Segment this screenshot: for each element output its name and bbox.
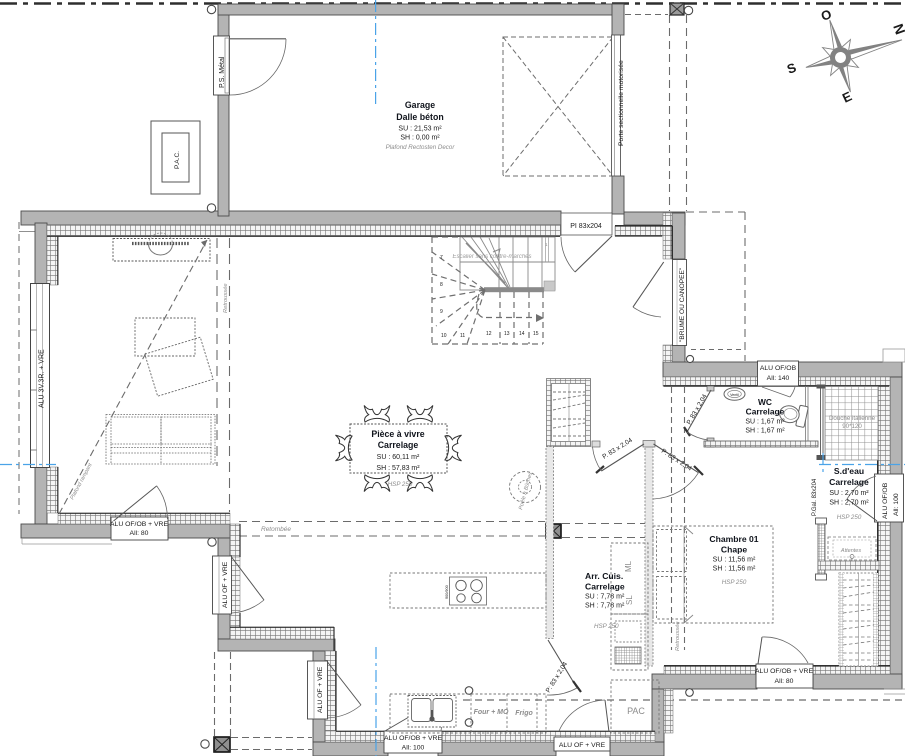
svg-text:SL: SL [625, 595, 634, 605]
svg-text:SU : 2,70 m²: SU : 2,70 m² [829, 490, 869, 497]
svg-text:ALU OF/OB: ALU OF/OB [882, 482, 889, 519]
svg-text:SU : 11,56 m²: SU : 11,56 m² [713, 557, 756, 564]
svg-text:7: 7 [440, 255, 443, 261]
svg-text:ALU OF + VRE: ALU OF + VRE [317, 666, 324, 713]
svg-text:Ventil: Ventil [730, 393, 739, 397]
svg-text:12: 12 [486, 331, 492, 337]
svg-text:HSP 250: HSP 250 [722, 579, 747, 586]
svg-text:Carrelage: Carrelage [378, 440, 419, 450]
svg-text:Porte sectionnelle motorisée: Porte sectionnelle motorisée [618, 60, 625, 146]
svg-text:Attentes: Attentes [840, 548, 861, 554]
svg-text:Carrelage: Carrelage [829, 477, 869, 487]
svg-text:S.d'eau: S.d'eau [834, 466, 864, 476]
svg-text:Pièce à vivre: Pièce à vivre [371, 429, 424, 439]
svg-text:Retombée: Retombée [261, 526, 291, 533]
svg-text:All: 100: All: 100 [893, 493, 900, 516]
svg-text:ALU OF/OB + VRE: ALU OF/OB + VRE [755, 668, 813, 675]
svg-text:ALU 3V.3R. + VRE: ALU 3V.3R. + VRE [39, 349, 46, 408]
svg-text:Chambre 01: Chambre 01 [709, 534, 758, 544]
svg-text:ALU OF/OB + VRE: ALU OF/OB + VRE [384, 735, 442, 742]
svg-text:8: 8 [440, 282, 443, 288]
svg-text:SH : 1,67 m²: SH : 1,67 m² [745, 428, 785, 435]
svg-text:Douche italienne: Douche italienne [829, 415, 876, 422]
svg-text:P.A.C.: P.A.C. [174, 151, 181, 169]
svg-text:Arr. Cuis.: Arr. Cuis. [585, 571, 623, 581]
svg-text:SU : 60,11 m²: SU : 60,11 m² [377, 454, 420, 461]
svg-text:Escalier sans contre-marches: Escalier sans contre-marches [452, 254, 531, 260]
svg-text:HSP 250: HSP 250 [594, 623, 619, 630]
svg-text:ML: ML [624, 560, 633, 572]
svg-text:11: 11 [460, 333, 465, 339]
svg-text:Garage: Garage [405, 100, 435, 110]
svg-text:ALU OF/OB: ALU OF/OB [760, 365, 797, 372]
svg-text:14: 14 [519, 331, 525, 337]
svg-text:SU : 21,53 m²: SU : 21,53 m² [398, 126, 442, 133]
svg-text:Carrelage: Carrelage [746, 407, 785, 417]
svg-text:Dalle béton: Dalle béton [396, 112, 443, 122]
svg-text:Retroussée: Retroussée [675, 621, 681, 651]
svg-text:ALU OF/OB + VRE: ALU OF/OB + VRE [110, 521, 168, 528]
svg-text:ALU OF + VRE: ALU OF + VRE [222, 561, 229, 608]
svg-text:15: 15 [533, 331, 539, 337]
svg-text:Frigo: Frigo [515, 710, 533, 717]
svg-text:SU : 1,67 m²: SU : 1,67 m² [745, 419, 785, 426]
svg-text:Retroussée: Retroussée [223, 283, 229, 313]
svg-text:SH : 57,83 m²: SH : 57,83 m² [376, 465, 420, 472]
svg-text:All: 100: All: 100 [402, 745, 425, 752]
svg-text:90*120: 90*120 [842, 423, 862, 430]
svg-text:SH : 2,70 m²: SH : 2,70 m² [829, 500, 869, 507]
svg-text:PAC: PAC [627, 706, 645, 716]
svg-text:PI 83x204: PI 83x204 [570, 223, 602, 230]
svg-text:10: 10 [441, 333, 447, 339]
svg-text:SU : 7,78 m²: SU : 7,78 m² [585, 594, 625, 601]
svg-text:WC: WC [758, 397, 772, 407]
svg-text:Chape: Chape [721, 545, 747, 555]
svg-text:Four + MO: Four + MO [474, 709, 509, 716]
svg-text:P.Gal. 83x204: P.Gal. 83x204 [812, 478, 818, 516]
svg-text:All: 80: All: 80 [130, 530, 149, 537]
svg-text:9: 9 [440, 309, 443, 315]
svg-text:900/900: 900/900 [445, 585, 449, 599]
svg-text:All: 80: All: 80 [775, 678, 794, 685]
svg-text:All: 140: All: 140 [767, 375, 790, 382]
svg-text:13: 13 [504, 331, 510, 337]
svg-text:Carrelage: Carrelage [585, 582, 625, 592]
svg-text:"BRUME OU CANOPEE": "BRUME OU CANOPEE" [679, 267, 686, 342]
svg-text:SH : 0,00 m²: SH : 0,00 m² [400, 135, 440, 142]
svg-text:Plafond Rectosten Decor: Plafond Rectosten Decor [386, 144, 456, 151]
svg-text:SH : 7,78 m²: SH : 7,78 m² [585, 603, 625, 610]
svg-text:ALU OF + VRE: ALU OF + VRE [559, 742, 606, 749]
svg-text:SH : 11,56 m²: SH : 11,56 m² [713, 566, 756, 573]
svg-text:HSP 250: HSP 250 [837, 514, 862, 521]
svg-text:P.S. Métal: P.S. Métal [219, 56, 226, 88]
